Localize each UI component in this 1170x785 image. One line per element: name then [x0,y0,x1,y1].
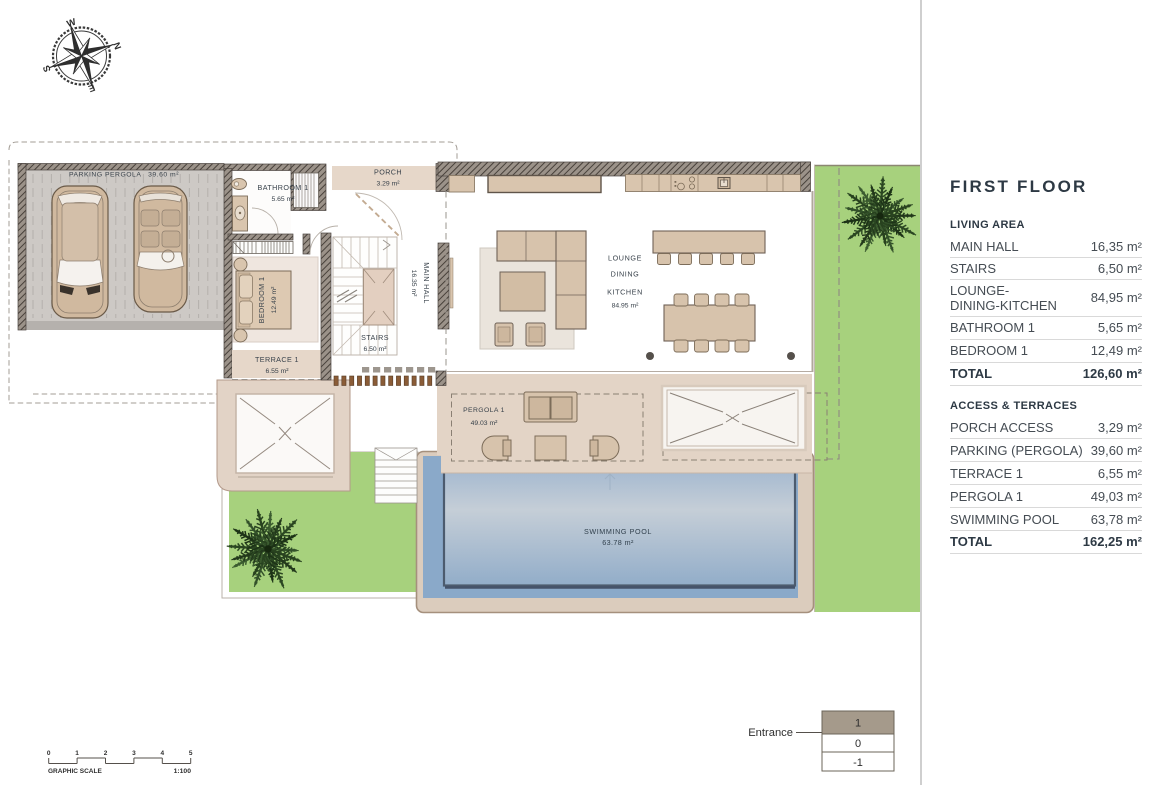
svg-text:BATHROOM 1: BATHROOM 1 [258,183,309,192]
svg-text:KITCHEN: KITCHEN [607,288,643,297]
svg-text:PERGOLA 1: PERGOLA 1 [463,407,505,414]
svg-text:BEDROOM 1: BEDROOM 1 [257,277,266,324]
svg-text:6.50 m²: 6.50 m² [363,346,387,353]
svg-text:0: 0 [855,738,861,750]
svg-text:1: 1 [855,718,861,730]
svg-text:PORCH: PORCH [374,168,402,177]
svg-text:DINING: DINING [611,270,640,279]
svg-text:49.03 m²: 49.03 m² [471,420,499,427]
svg-text:MAIN HALL: MAIN HALL [422,262,431,304]
svg-text:0: 0 [47,750,51,757]
svg-text:2: 2 [104,750,108,757]
svg-text:1: 1 [75,750,79,757]
svg-text:SWIMMING POOL: SWIMMING POOL [584,527,652,536]
svg-text:84.95 m²: 84.95 m² [612,303,640,310]
svg-text:Entrance: Entrance [748,727,793,739]
svg-text:12.49 m²: 12.49 m² [271,286,278,314]
svg-text:6.55 m²: 6.55 m² [265,368,289,375]
svg-text:4: 4 [160,750,164,757]
svg-text:3.29 m²: 3.29 m² [376,181,400,188]
svg-text:TERRACE 1: TERRACE 1 [255,355,299,364]
svg-text:63.78 m²: 63.78 m² [602,538,634,547]
svg-text:GRAPHIC SCALE: GRAPHIC SCALE [48,768,102,775]
svg-text:LOUNGE: LOUNGE [608,254,642,263]
svg-text:5.65 m²: 5.65 m² [271,196,295,203]
svg-text:1:100: 1:100 [174,768,192,775]
svg-text:3: 3 [132,750,136,757]
svg-text:16.35 m²: 16.35 m² [410,270,417,298]
svg-text:5: 5 [189,750,193,757]
svg-text:PARKING PERGOLA 39.60 m²: PARKING PERGOLA 39.60 m² [69,172,179,179]
svg-text:STAIRS: STAIRS [361,333,389,342]
svg-text:-1: -1 [853,757,863,769]
